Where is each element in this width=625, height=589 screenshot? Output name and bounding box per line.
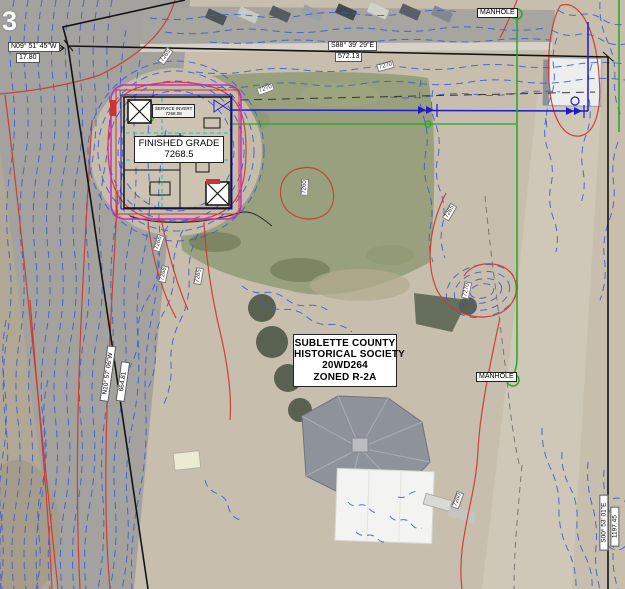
parcel-owner-line2: HISTORICAL SOCIETY (294, 349, 396, 360)
pavement-marking: 3 (2, 6, 17, 37)
parcel-number: 20WD264 (294, 360, 396, 371)
service-invert-elevation: 7268.08 (155, 111, 192, 116)
finished-grade-callout: FINISHED GRADE 7268.5 (134, 136, 224, 163)
bearing-east: S00° 53' 01"E (599, 495, 608, 551)
canopy-roof (335, 468, 434, 543)
aerial-photo (0, 0, 625, 589)
manhole-label-east: MANHOLE (476, 372, 517, 382)
hatch-box-se (206, 182, 229, 205)
manhole-label-top: MANHOLE (477, 8, 518, 18)
parcel-zoning: ZONED R-2A (294, 372, 396, 383)
parcel-callout: SUBLETTE COUNTY HISTORICAL SOCIETY 20WD2… (293, 334, 397, 387)
service-invert-callout: SERVICE INVERT 7268.08 (152, 104, 195, 118)
distance-nw: 17.80 (16, 53, 40, 63)
finished-grade-elevation: 7268.5 (135, 150, 223, 161)
distance-north: 572.13 (335, 52, 362, 62)
shed (173, 451, 201, 471)
parcel-owner-line1: SUBLETTE COUNTY (294, 338, 396, 349)
site-plan-map: 3 MANHOLE MANHOLE N09° 51' 45"W 17.80 S8… (0, 0, 625, 589)
site-plan-drawing (0, 0, 625, 589)
bearing-nw: N09° 51' 45"W (8, 42, 60, 52)
contour-label: 7260 (300, 178, 309, 196)
distance-east: 1197.45 (610, 507, 619, 547)
bearing-north: S88° 39' 29"E (328, 41, 377, 51)
hatch-box-nw (128, 100, 151, 123)
